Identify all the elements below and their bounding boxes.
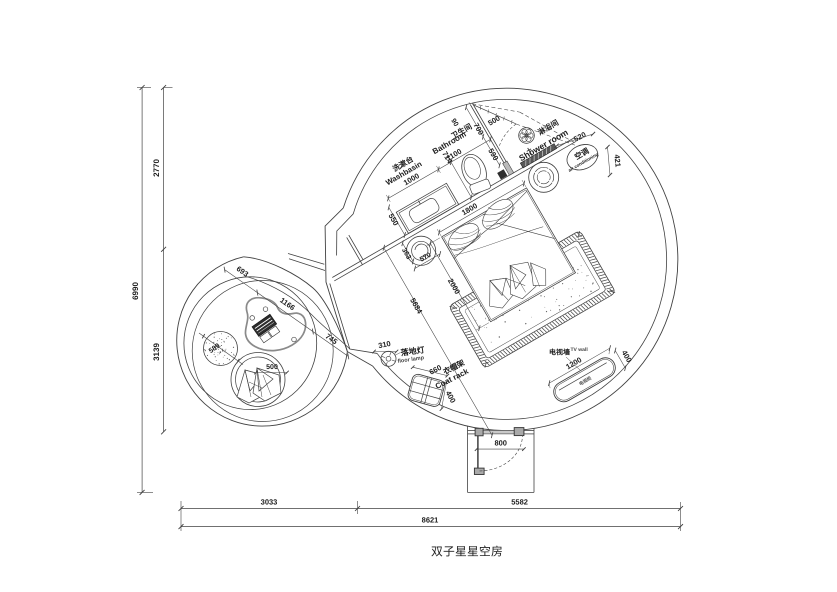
- svg-text:800: 800: [494, 439, 507, 448]
- svg-text:双子星星空房: 双子星星空房: [431, 545, 503, 559]
- svg-text:6990: 6990: [131, 282, 140, 300]
- svg-text:5582: 5582: [511, 498, 528, 507]
- svg-text:3033: 3033: [261, 498, 278, 507]
- svg-text:500: 500: [266, 364, 278, 371]
- svg-text:8621: 8621: [422, 516, 439, 525]
- svg-text:TV wall: TV wall: [571, 347, 589, 353]
- svg-text:421: 421: [612, 154, 622, 167]
- svg-text:电视墙: 电视墙: [549, 348, 570, 357]
- svg-text:3139: 3139: [152, 343, 161, 361]
- svg-text:2770: 2770: [152, 159, 161, 177]
